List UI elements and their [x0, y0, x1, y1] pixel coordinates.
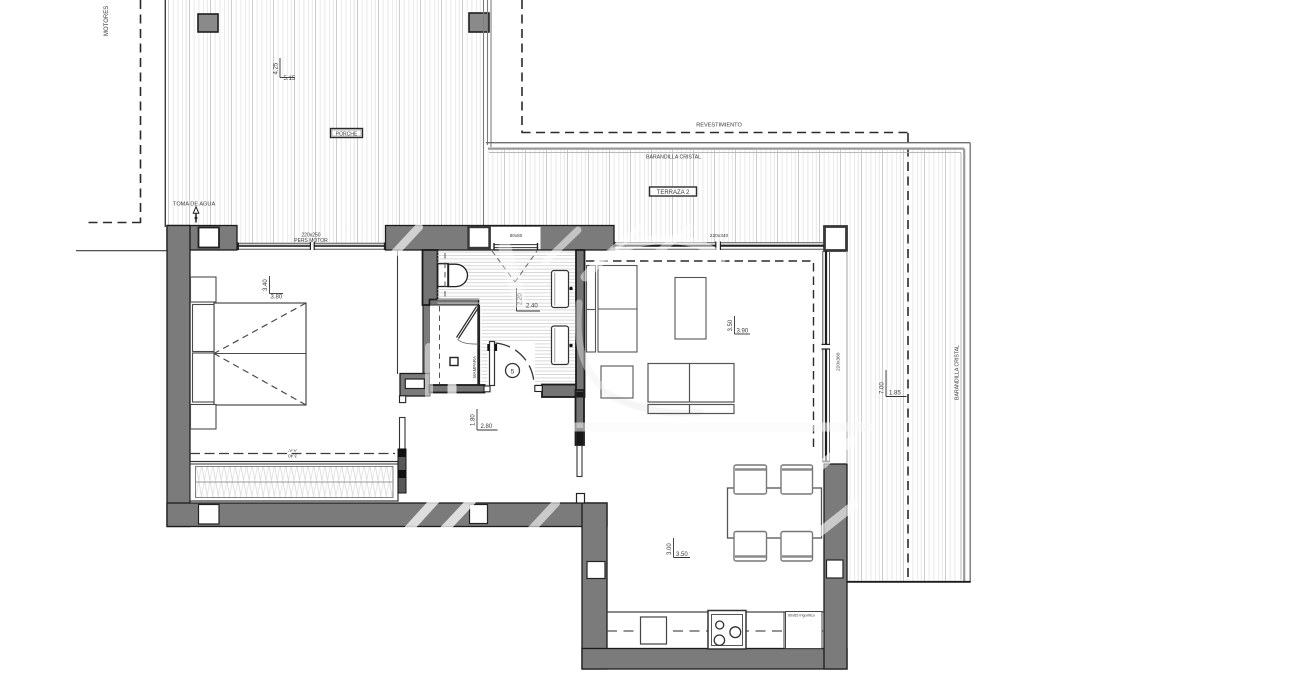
svg-text:220x340: 220x340	[710, 233, 729, 239]
svg-text:PORCHE: PORCHE	[336, 131, 358, 137]
svg-text:REVESTIMIENTO: REVESTIMIENTO	[696, 123, 742, 129]
svg-text:2.40: 2.40	[526, 304, 538, 310]
svg-text:BARANDILLA CRISTAL: BARANDILLA CRISTAL	[646, 155, 701, 161]
svg-text:3.80: 3.80	[271, 295, 283, 301]
svg-text:PERS MOTOR: PERS MOTOR	[294, 238, 328, 244]
svg-text:MOTORES: MOTORES	[104, 6, 110, 36]
svg-text:220x360: 220x360	[836, 352, 842, 371]
svg-text:80x80: 80x80	[510, 233, 523, 238]
svg-text:7.00: 7.00	[880, 382, 886, 394]
svg-text:TOMA DE AGUA: TOMA DE AGUA	[173, 202, 215, 208]
svg-text:1.85: 1.85	[889, 391, 901, 397]
svg-text:TERRAZA 2: TERRAZA 2	[657, 190, 690, 196]
svg-text:3.40: 3.40	[288, 454, 297, 459]
svg-text:3.50: 3.50	[728, 319, 734, 331]
svg-text:4.25: 4.25	[274, 62, 280, 74]
svg-text:3.50: 3.50	[676, 552, 688, 558]
svg-text:5.15: 5.15	[284, 76, 296, 82]
svg-text:3.90: 3.90	[737, 329, 749, 335]
svg-text:3.00: 3.00	[667, 543, 673, 555]
svg-text:60x65 frigorifico: 60x65 frigorifico	[788, 614, 815, 618]
svg-text:2.80: 2.80	[481, 424, 493, 430]
svg-text:MAMPARA: MAMPARA	[472, 356, 477, 378]
svg-text:5: 5	[511, 368, 515, 375]
svg-text:3.40: 3.40	[263, 279, 269, 291]
svg-text:1.80: 1.80	[471, 414, 477, 426]
svg-text:BARANDILLA CRISTAL: BARANDILLA CRISTAL	[955, 345, 961, 400]
svg-text:A-A': A-A'	[288, 448, 297, 453]
